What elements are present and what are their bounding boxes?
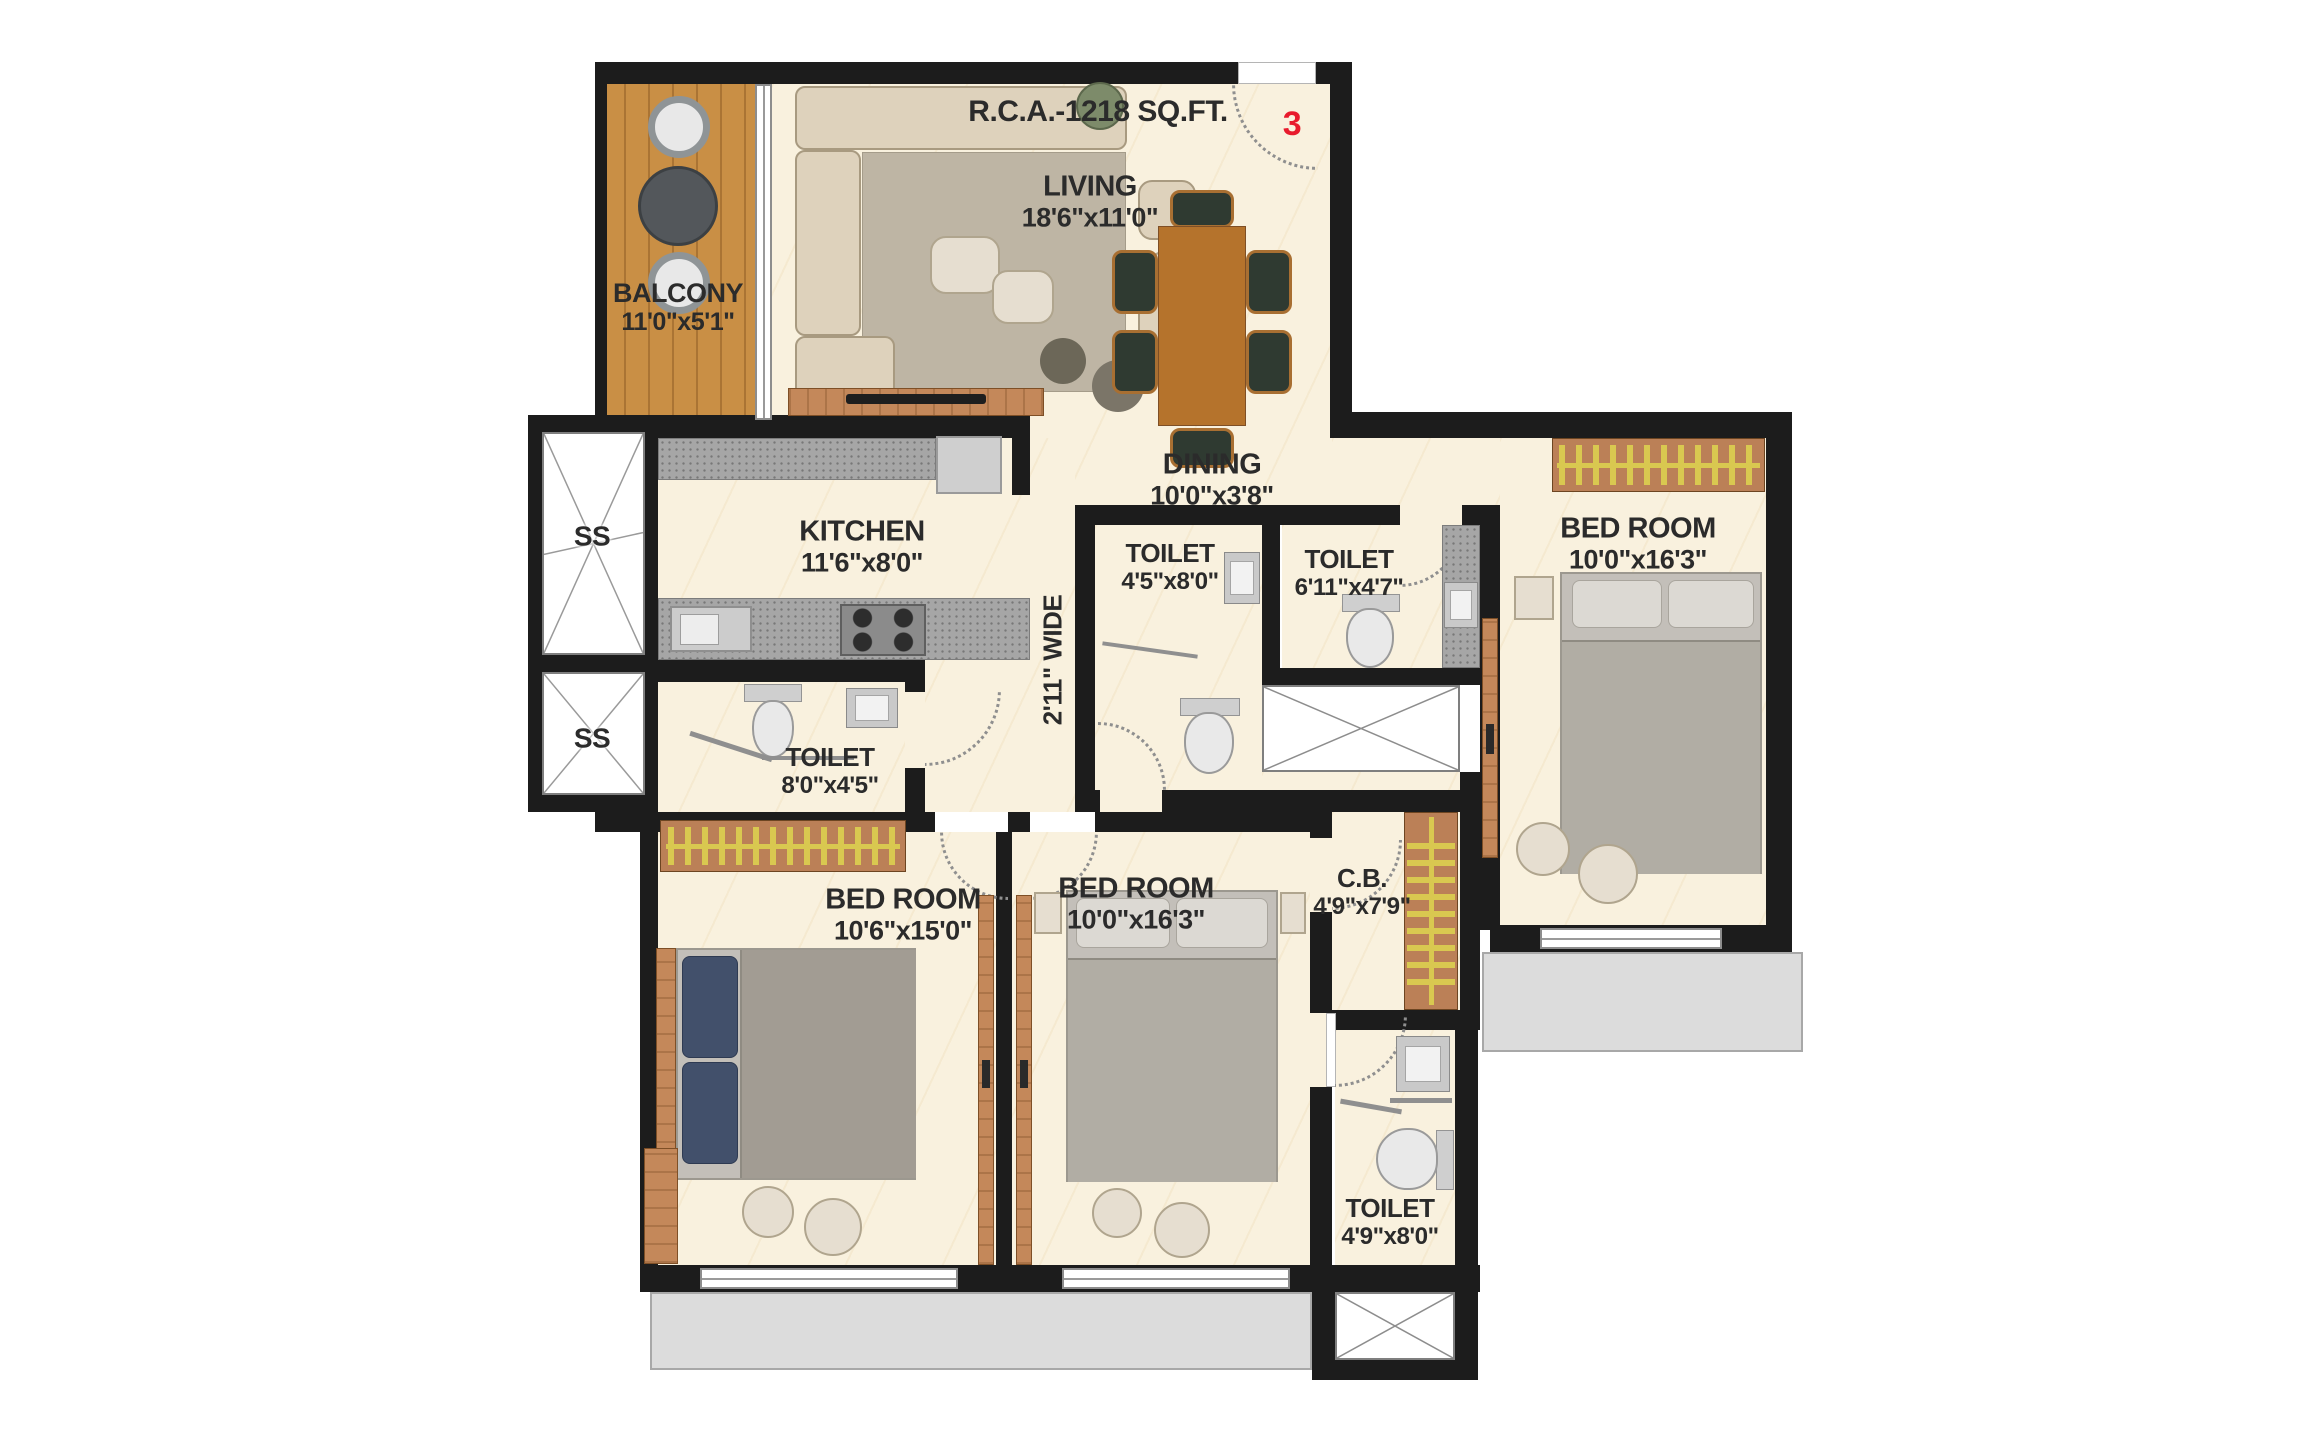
passage-width-label: 2'11" WIDE (1038, 595, 1067, 726)
duct-shaft (1335, 1292, 1455, 1360)
pouf (1040, 338, 1086, 384)
room-label-kitchen: KITCHEN 11'6"x8'0" (799, 516, 924, 579)
dining-table (1158, 226, 1246, 426)
room-name: LIVING (1022, 171, 1158, 203)
wc-icon (1346, 608, 1394, 668)
room-dims: 10'0"x3'8" (1150, 481, 1273, 511)
coffee-table (992, 270, 1054, 324)
room-dims: 4'5"x8'0" (1121, 568, 1218, 595)
shower-partition (1390, 1098, 1452, 1103)
wall (1312, 1360, 1478, 1380)
wall (595, 62, 1238, 84)
wall (595, 62, 607, 424)
coffee-table (930, 236, 1000, 294)
blanket (1068, 958, 1276, 1182)
pillow (682, 956, 738, 1058)
area-label: R.C.A.-1218 SQ.FT. (968, 95, 1227, 129)
blanket (740, 950, 916, 1178)
shaft-label: SS (574, 722, 610, 753)
room-dims: 10'0"x16'3" (1058, 905, 1214, 935)
fridge (936, 436, 1002, 494)
pouf (1092, 1188, 1142, 1238)
toilet-door-leaf (1326, 1013, 1336, 1087)
dining-chair (1170, 190, 1234, 228)
room-name: BED ROOM (1560, 513, 1716, 545)
room-name: C.B. (1313, 864, 1410, 893)
shaft-text: SS (574, 520, 610, 551)
wall (905, 682, 925, 692)
wc-tank (1436, 1130, 1454, 1190)
room-label-dining: DINING 10'0"x3'8" (1150, 449, 1273, 512)
wall (1460, 772, 1480, 1030)
window (700, 1268, 958, 1289)
washbasin-icon (846, 688, 898, 728)
wall (1012, 415, 1030, 495)
door-handle (982, 1060, 990, 1088)
room-name: BED ROOM (825, 884, 981, 916)
wardrobe (660, 820, 906, 872)
wall (1455, 1030, 1478, 1380)
room-dims: 8'0"x4'5" (781, 772, 878, 799)
wall (1262, 668, 1480, 685)
shaft-cross-icon (1337, 1294, 1453, 1358)
room-name: TOILET (1341, 1194, 1438, 1223)
floor-plan: R.C.A.-1218 SQ.FT. 3 LIVING 18'6"x11'0" … (0, 0, 2313, 1456)
wall (645, 660, 925, 682)
wall (1162, 790, 1480, 812)
room-label-toilet-a: TOILET 4'5"x8'0" (1121, 539, 1218, 595)
room-label-balcony: BALCONY 11'0"x5'1" (613, 278, 743, 336)
wall (1075, 505, 1095, 812)
wall (1310, 1087, 1332, 1265)
room-label-toilet-bottom: TOILET 4'9"x8'0" (1341, 1194, 1438, 1250)
pouf (1154, 1202, 1210, 1258)
dining-chair (1246, 250, 1292, 314)
wardrobe (1404, 812, 1458, 1010)
room-dims: 11'6"x8'0" (799, 548, 924, 578)
kitchen-counter (658, 438, 936, 480)
wall (1075, 790, 1100, 812)
shaft-text: SS (574, 722, 610, 753)
pouf (1578, 844, 1638, 904)
wall (528, 415, 542, 812)
washbasin-icon (1396, 1036, 1450, 1092)
room-label-bedroom-bottom-mid: BED ROOM 10'0"x16'3" (1058, 873, 1214, 936)
room-dims: 10'0"x16'3" (1560, 545, 1716, 575)
passage-text: 2'11" WIDE (1037, 595, 1067, 726)
wc-icon (1184, 712, 1234, 774)
wall (645, 415, 658, 812)
room-label-cupboard: C.B. 4'9"x7'9" (1313, 864, 1410, 920)
wall (528, 795, 658, 812)
shaft-cross-icon (1264, 687, 1458, 770)
wall (1008, 812, 1030, 832)
room-label-toilet-b: TOILET 6'11"x4'7" (1295, 545, 1404, 601)
pillow (1668, 580, 1754, 628)
wall (1462, 505, 1500, 525)
room-name: TOILET (1295, 545, 1404, 574)
stove-icon (840, 604, 926, 656)
room-label-bedroom-right: BED ROOM 10'0"x16'3" (1560, 513, 1716, 576)
room-name: KITCHEN (799, 516, 924, 548)
room-dims: 6'11"x4'7" (1295, 574, 1404, 601)
door-opening (905, 692, 925, 768)
wall (1095, 812, 1332, 832)
wall (528, 655, 658, 672)
door-handle (1020, 1060, 1028, 1088)
bedside-table (1280, 892, 1306, 934)
room-name: BALCONY (613, 278, 743, 308)
window (1540, 928, 1722, 949)
wall (528, 415, 658, 432)
wall (1766, 412, 1792, 952)
wall (595, 415, 1030, 438)
wc-icon (1376, 1128, 1438, 1190)
washbasin-icon (1444, 582, 1478, 628)
room-name: DINING (1150, 449, 1273, 481)
wall (1330, 412, 1792, 438)
bed-headboard (656, 948, 676, 1180)
unit-number-text: 3 (1283, 105, 1301, 143)
window (1062, 1268, 1290, 1289)
dining-chair (1112, 330, 1158, 394)
dining-chair (1246, 330, 1292, 394)
wardrobe (1552, 438, 1765, 492)
wall (1316, 62, 1352, 84)
duct-shaft (1262, 685, 1460, 772)
wall (1330, 84, 1352, 412)
pouf (742, 1186, 794, 1238)
blanket (1562, 640, 1760, 874)
room-dims: 18'6"x11'0" (1022, 203, 1158, 233)
pouf (1516, 822, 1570, 876)
area-text: R.C.A.-1218 SQ.FT. (968, 95, 1227, 128)
room-name: TOILET (781, 743, 878, 772)
wall (1310, 912, 1332, 1013)
tv-icon (846, 394, 986, 404)
room-dims: 4'9"x8'0" (1341, 1223, 1438, 1250)
bedside-table (1514, 576, 1554, 620)
room-dims: 4'9"x7'9" (1313, 893, 1410, 920)
balcony-chair (648, 96, 710, 158)
pillow (1572, 580, 1662, 628)
pouf (804, 1198, 862, 1256)
washbasin-icon (1224, 552, 1260, 604)
door-opening (1400, 505, 1462, 525)
room-label-toilet-left: TOILET 8'0"x4'5" (781, 743, 878, 799)
dresser (644, 1148, 678, 1264)
room-dims: 11'0"x5'1" (613, 308, 743, 336)
sofa-chaise (795, 150, 861, 336)
door-handle (1486, 724, 1494, 754)
entrance-door-leaf (1238, 62, 1316, 84)
pillow (682, 1062, 738, 1164)
wall (1262, 525, 1280, 685)
right-ledge (1482, 952, 1803, 1052)
shaft-label: SS (574, 520, 610, 551)
room-label-bedroom-bottom-left: BED ROOM 10'6"x15'0" (825, 884, 981, 947)
dining-chair (1112, 250, 1158, 314)
door-opening (1100, 790, 1162, 812)
room-name: TOILET (1121, 539, 1218, 568)
balcony-sliding-window (755, 84, 772, 420)
kitchen-sink-icon (670, 606, 752, 652)
balcony-table (638, 166, 718, 246)
room-dims: 10'6"x15'0" (825, 916, 981, 946)
wall (905, 768, 925, 812)
room-label-living: LIVING 18'6"x11'0" (1022, 171, 1158, 234)
unit-number: 3 (1283, 105, 1301, 143)
room-name: BED ROOM (1058, 873, 1214, 905)
bottom-ledge (650, 1292, 1312, 1370)
